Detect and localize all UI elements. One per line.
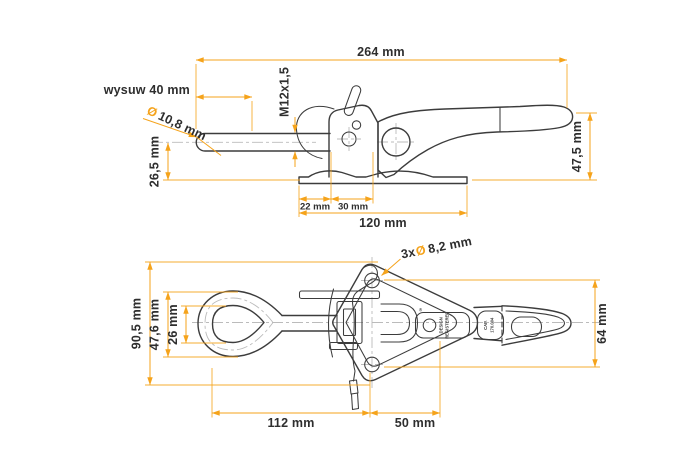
cross-pin [300,291,380,299]
dim-overall-height: 47,5 mm [472,113,597,180]
svg-text:CAP.: CAP. [483,320,488,329]
latch-horseshoe [381,304,418,342]
dim-label-overall-height: 47,5 mm [570,121,584,172]
registered-symbol: ® [419,308,423,313]
latch-technical-drawing: 264 mm wysuw 40 mm Ø 10,8 mm 26,5 mm [0,0,700,467]
side-view: 264 mm wysuw 40 mm Ø 10,8 mm 26,5 mm [103,45,597,230]
lever-handle [378,105,573,177]
dim-label-overall-width: 90,5 mm [130,298,144,349]
bracket-housing [329,105,378,177]
grip-inner-line [506,311,565,340]
stamp-design-registered: ® DESIGN REGISTERED [416,308,470,339]
dim-label-loop-inner: 26 mm [166,304,180,345]
dim-loop-outer: 47,6 mm [148,292,239,357]
dim-label-holes-diameter: 8,2 mm [427,234,473,256]
dim-base-holes: 22 mm 30 mm 120 mm [299,152,467,230]
dim-axis-height: 26,5 mm [148,136,301,187]
dim-label-axis-height: 26,5 mm [148,136,162,187]
dim-label-holes-pitch: 50 mm [395,416,436,430]
maker-logo [423,319,436,332]
diameter-symbol-holes: Ø [415,243,427,259]
svg-text:DESIGN: DESIGN [439,317,444,333]
safety-pin-ring [352,121,360,129]
dim-label-extension: wysuw 40 mm [103,83,190,97]
svg-text:170.004: 170.004 [490,317,495,333]
plan-view-part: ® DESIGN REGISTERED CAP. 170.004 [198,264,571,409]
dim-label-hole-pitch: 30 mm [338,202,368,213]
svg-text:REGISTERED: REGISTERED [445,312,450,339]
tow-loop-outer [198,291,282,357]
dim-label-holes-count: 3x [400,245,417,261]
technical-drawing-page: 264 mm wysuw 40 mm Ø 10,8 mm 26,5 mm [0,0,700,467]
dim-label-thread: M12x1,5 [278,67,292,117]
stamp-capacity: CAP. 170.004 [478,311,504,340]
plan-view-centerlines [192,257,601,391]
dim-mounting-holes: 3x Ø 8,2 mm [382,234,474,275]
dim-label-overall-length: 264 mm [357,45,405,59]
dim-label-base-length: 120 mm [359,216,407,230]
dim-label-handle-width: 64 mm [595,303,609,344]
tow-loop-inner [213,306,265,343]
safety-pin [343,84,362,116]
dim-thread-spec: M12x1,5 [278,67,296,167]
safety-pin-tip [350,380,359,410]
dim-label-loop-outer: 47,6 mm [148,299,162,350]
base-plate-side [299,171,467,184]
side-view-part [196,84,572,183]
plan-view: ® DESIGN REGISTERED CAP. 170.004 90,5 mm… [130,234,610,430]
dim-label-loop-to-holes: 112 mm [267,416,314,430]
dim-label-hole-offset: 22 mm [300,202,330,213]
